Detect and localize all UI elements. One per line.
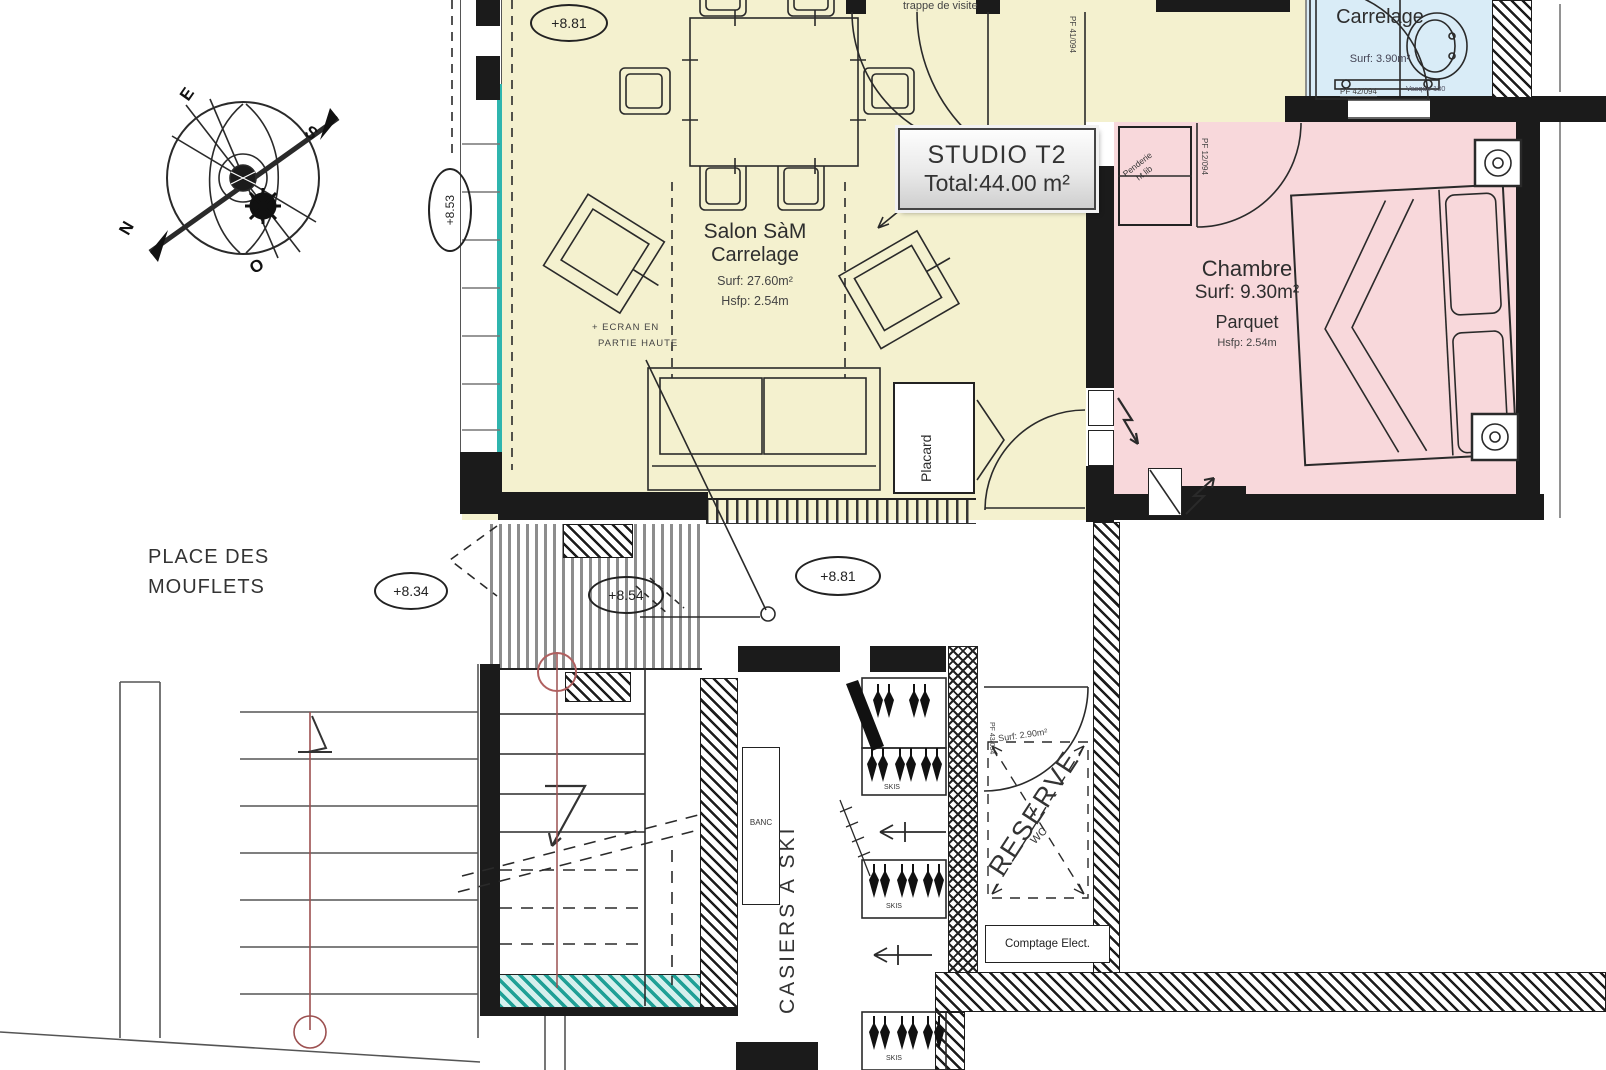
level-ellipse-deck: +8.54 bbox=[588, 576, 664, 614]
comptage-label: Comptage Elect. bbox=[985, 925, 1110, 963]
armchair-right bbox=[839, 223, 972, 348]
vasque-label: Vasque 130 bbox=[1406, 84, 1445, 93]
salon-label-group: Salon SàM Carrelage Surf: 27.60m² Hsfp: … bbox=[660, 220, 850, 308]
interior-stairs bbox=[458, 652, 702, 1070]
level-ellipse-balcon: +8.53 bbox=[428, 168, 472, 252]
compass-o: O bbox=[246, 255, 267, 278]
radiator bbox=[1475, 140, 1521, 186]
level-value: +8.53 bbox=[443, 195, 457, 225]
level-ellipse-corridor: +8.81 bbox=[795, 556, 881, 596]
lightning-icon bbox=[1118, 398, 1138, 444]
place-line2: MOUFLETS bbox=[148, 572, 269, 602]
exterior-stairs bbox=[0, 664, 480, 1062]
place-label: PLACE DES MOUFLETS bbox=[148, 542, 269, 602]
ecran-note: + ECRAN EN PARTIE HAUTE bbox=[592, 320, 678, 352]
ecran-line2: PARTIE HAUTE bbox=[598, 336, 678, 352]
sofa bbox=[648, 368, 880, 490]
compass-n: N bbox=[115, 218, 138, 238]
chambre-label-group: Chambre Surf: 9.30m² Parquet Hsfp: 2.54m bbox=[1142, 256, 1352, 349]
door-leaf-hatched bbox=[840, 800, 870, 876]
sun-symbol bbox=[245, 188, 281, 224]
radiator bbox=[1472, 414, 1518, 460]
linework-layer: E S N O bbox=[0, 0, 1606, 1070]
reserve-door-label: PF 43/094 bbox=[988, 722, 995, 754]
step-arrow-icon bbox=[1186, 478, 1214, 514]
level-value: +8.81 bbox=[551, 15, 586, 31]
salon-floor: Carrelage bbox=[660, 244, 850, 267]
level-value: +8.34 bbox=[393, 583, 428, 599]
title-block: STUDIO T2 Total:44.00 m² bbox=[898, 128, 1096, 210]
skis-label: SKIS bbox=[886, 903, 902, 910]
casiers-label: CASIERS A SKI bbox=[776, 752, 800, 1014]
direction-arrow bbox=[874, 945, 932, 965]
level-ellipse-place: +8.34 bbox=[374, 572, 448, 610]
skis-label: SKIS bbox=[886, 1055, 902, 1062]
compass-rose: E S N O bbox=[115, 84, 338, 278]
reserve-name: RESERVE bbox=[952, 736, 1116, 890]
salon-surface: Surf: 27.60m² bbox=[660, 274, 850, 288]
level-ellipse-salon: +8.81 bbox=[530, 4, 608, 42]
chambre-surface: Surf: 9.30m² bbox=[1142, 282, 1352, 304]
reserve-name-text: RESERVE bbox=[982, 745, 1086, 881]
placard-label: Placard bbox=[918, 398, 934, 482]
salon-back-door bbox=[985, 410, 1085, 510]
plan-title: STUDIO T2 bbox=[927, 141, 1066, 170]
skis-label: SKIS bbox=[884, 784, 900, 791]
plan-total-area: Total:44.00 m² bbox=[924, 170, 1070, 197]
sdb-door-label: PF 42/094 bbox=[1340, 87, 1377, 97]
chambre-height: Hsfp: 2.54m bbox=[1142, 337, 1352, 349]
level-value: +8.54 bbox=[608, 587, 643, 603]
compass-e: E bbox=[176, 84, 198, 104]
dining-set bbox=[620, 0, 914, 210]
leader-dot bbox=[761, 607, 775, 621]
ecran-line1: + ECRAN EN bbox=[592, 320, 678, 336]
salon-name: Salon SàM bbox=[660, 220, 850, 244]
chambre-door bbox=[1197, 123, 1301, 227]
floor-plan: E S N O bbox=[0, 0, 1606, 1070]
trappe-label: trappe de visite bbox=[903, 0, 978, 12]
comptage-text: Comptage Elect. bbox=[1005, 938, 1090, 950]
sdb-floor: Carrelage bbox=[1315, 6, 1445, 29]
direction-arrow bbox=[880, 822, 946, 842]
sdb-surface: Surf: 3.90m² bbox=[1315, 53, 1445, 65]
placard-doors bbox=[977, 400, 1004, 480]
place-line1: PLACE DES bbox=[148, 542, 269, 572]
ski-lockers bbox=[840, 678, 946, 1070]
sdb-label-group: Carrelage Surf: 3.90m² bbox=[1315, 6, 1445, 65]
cabinet-diagonal bbox=[1150, 470, 1180, 514]
salon-height: Hsfp: 2.54m bbox=[660, 294, 850, 308]
chambre-name: Chambre bbox=[1142, 256, 1352, 282]
entry-door-label: PF 41/094 bbox=[1068, 16, 1077, 53]
chambre-floor: Parquet bbox=[1142, 312, 1352, 333]
level-value: +8.81 bbox=[820, 568, 855, 584]
banc-label: BANC bbox=[744, 818, 778, 827]
chambre-door-label: PF 12/094 bbox=[1200, 138, 1209, 175]
